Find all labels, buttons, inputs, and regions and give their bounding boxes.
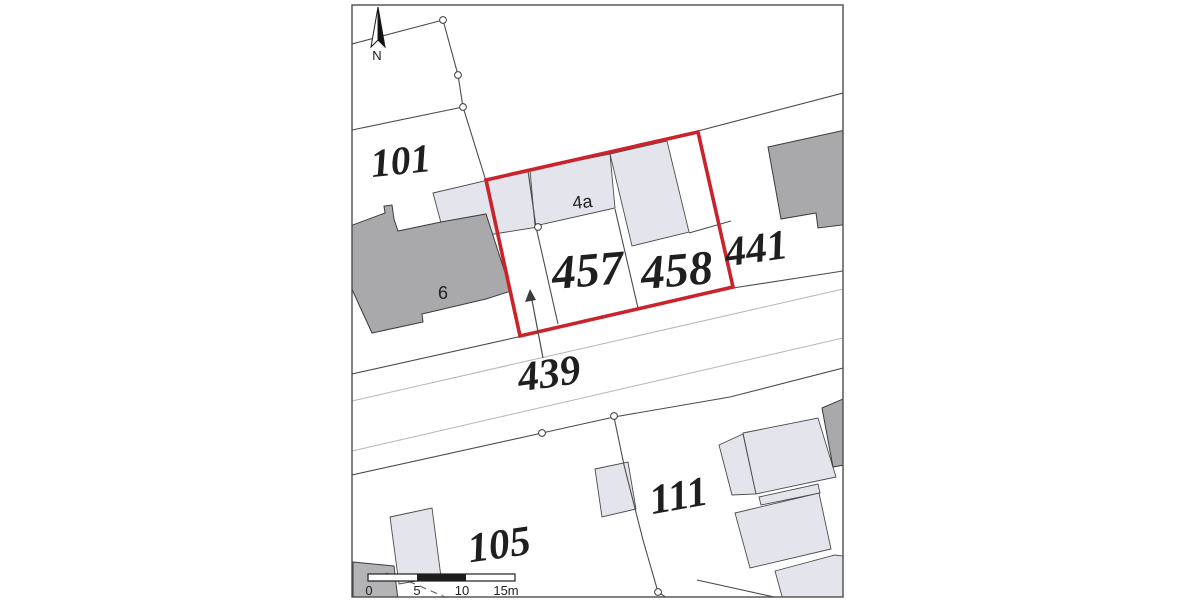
building-4a-outline xyxy=(530,154,615,226)
parcel-label-458: 458 xyxy=(637,241,714,300)
parcel-label-457: 457 xyxy=(548,241,627,300)
building-105 xyxy=(390,508,441,584)
parcel-label-441: 441 xyxy=(721,222,791,276)
parcel-label-439: 439 xyxy=(514,347,584,401)
scale-tick-5: 5 xyxy=(413,583,420,598)
building-label-4a: 4a xyxy=(571,191,594,213)
parcel-label-101: 101 xyxy=(368,135,432,186)
scale-tick-0: 0 xyxy=(365,583,372,598)
building-in-458 xyxy=(610,141,689,246)
parcel-label-111: 111 xyxy=(646,468,711,523)
north-label: N xyxy=(372,48,381,63)
building-cluster-se-bottom xyxy=(775,555,850,600)
north-arrow-icon: N xyxy=(371,7,385,63)
cadastral-map-page: 101 441 439 457 458 105 111 4a 6 N 0 5 1… xyxy=(0,0,1200,600)
building-label-6: 6 xyxy=(438,283,448,303)
scale-tick-15m: 15m xyxy=(493,583,518,598)
building-cluster-se-lower xyxy=(735,493,831,568)
parcel-label-105: 105 xyxy=(465,518,534,572)
scale-bar-filled-segment xyxy=(417,574,466,581)
scale-tick-10: 10 xyxy=(455,583,469,598)
building-6-outline xyxy=(350,205,511,333)
building-cluster-se-main xyxy=(743,418,836,494)
map-canvas: 101 441 439 457 458 105 111 4a 6 N 0 5 1… xyxy=(0,0,1200,600)
building-441 xyxy=(768,129,850,228)
leader-arrow-439 xyxy=(525,289,543,358)
